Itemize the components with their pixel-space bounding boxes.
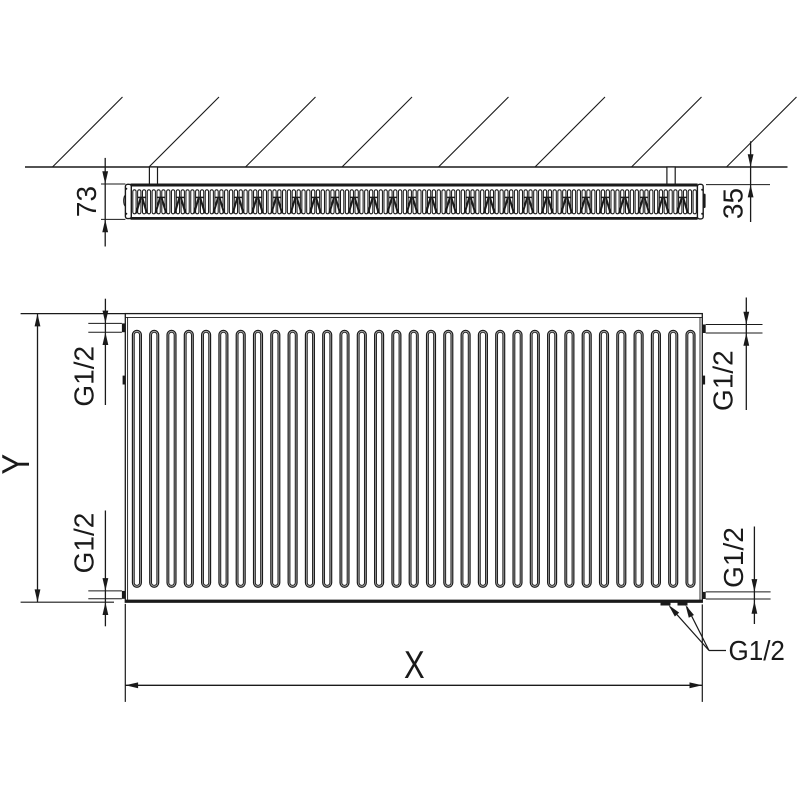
svg-text:G1/2: G1/2 [69, 346, 100, 407]
svg-text:G1/2: G1/2 [729, 635, 785, 666]
svg-text:G1/2: G1/2 [708, 350, 739, 411]
svg-text:X: X [404, 644, 425, 687]
svg-text:73: 73 [71, 186, 102, 217]
svg-text:G1/2: G1/2 [69, 513, 100, 574]
svg-text:Y: Y [0, 454, 38, 475]
svg-text:G1/2: G1/2 [718, 527, 749, 588]
svg-text:35: 35 [718, 188, 749, 219]
